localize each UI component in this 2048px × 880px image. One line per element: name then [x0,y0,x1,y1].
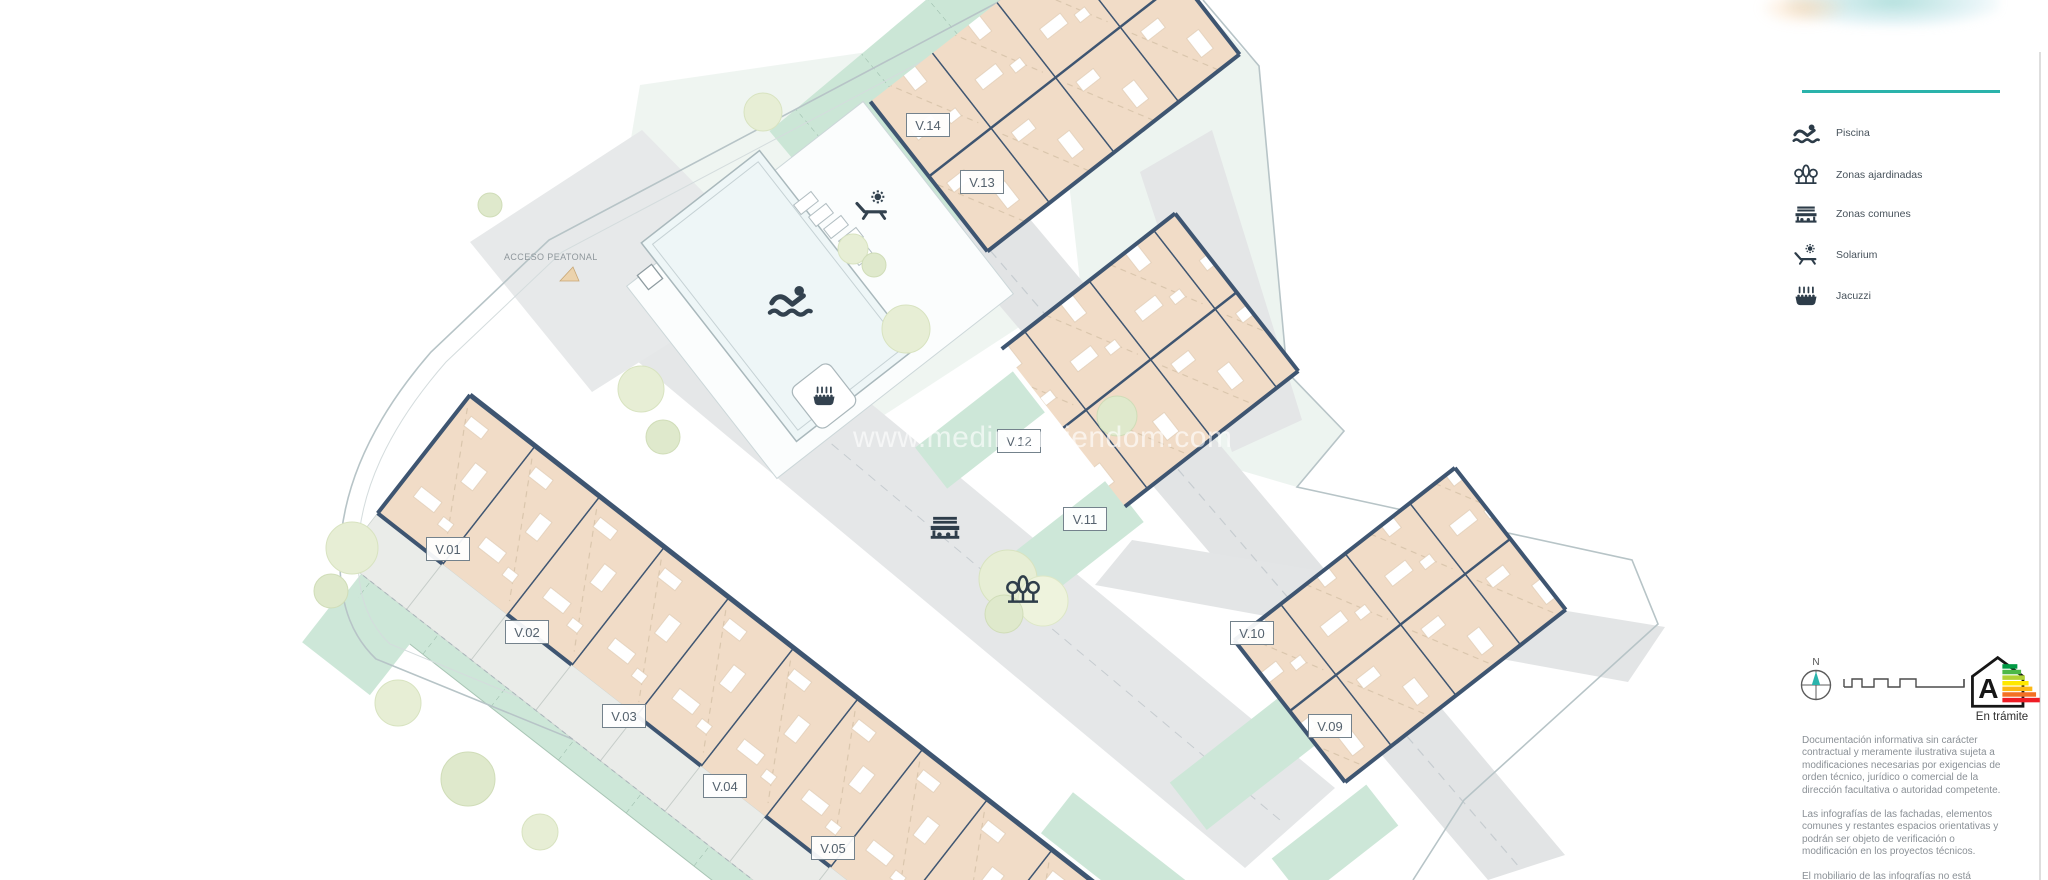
energy-status: En trámite [1956,711,2048,723]
energy-rating-letter: A [1978,673,1998,704]
energy-bar [2002,687,2032,691]
solarium-icon [1792,241,1820,269]
compass: N [1795,653,1839,709]
unit-label-v09: V.09 [1308,714,1352,738]
bench-icon [1792,200,1820,228]
legend-label: Solarium [1836,249,1877,261]
trees-icon [1792,161,1820,189]
disclaimer-paragraph: El mobiliario de las infografías no está… [1802,871,2010,880]
disclaimer-paragraph: Documentación informativa sin carácter c… [1802,735,2010,797]
legend-label: Piscina [1836,127,1870,139]
scale-bar [1842,668,1970,694]
unit-label-v01: V.01 [426,537,470,561]
unit-label-v12: V.12 [997,429,1041,453]
unit-label-v13: V.13 [960,170,1004,194]
unit-label-v11: V.11 [1063,507,1107,531]
swimmer-icon [1792,119,1820,147]
legend-label: Zonas comunes [1836,208,1911,220]
legend-item-zonas-comunes: Zonas comunes [1792,200,2042,228]
disclaimer-paragraph: Las infografías de las fachadas, element… [1802,809,2010,859]
energy-bar [2002,692,2036,696]
energy-bar [2002,681,2028,685]
access-label: ACCESO PEATONAL [504,252,598,262]
energy-bar [2002,698,2039,702]
energy-bar [2002,664,2017,668]
disclaimer: Documentación informativa sin carácter c… [1802,735,2010,880]
legend-item-jacuzzi: Jacuzzi [1792,282,2042,310]
accent-divider [1802,90,2000,93]
unit-label-v02: V.02 [505,620,549,644]
legend-label: Zonas ajardinadas [1836,169,1922,181]
unit-label-v14: V.14 [906,113,950,137]
legend-label: Jacuzzi [1836,290,1871,302]
energy-rating-badge: A [1968,652,2048,710]
unit-label-v04: V.04 [703,774,747,798]
legend-item-piscina: Piscina [1792,119,2042,147]
unit-label-v10: V.10 [1230,621,1274,645]
jacuzzi-icon [1792,282,1820,310]
unit-label-v03: V.03 [602,704,646,728]
compass-north-label: N [1812,657,1819,668]
energy-bar [2002,670,2021,674]
energy-bar [2002,675,2024,679]
unit-label-v05: V.05 [811,836,855,860]
legend-item-solarium: Solarium [1792,241,2042,269]
legend-item-zonas-ajardinadas: Zonas ajardinadas [1792,161,2042,189]
